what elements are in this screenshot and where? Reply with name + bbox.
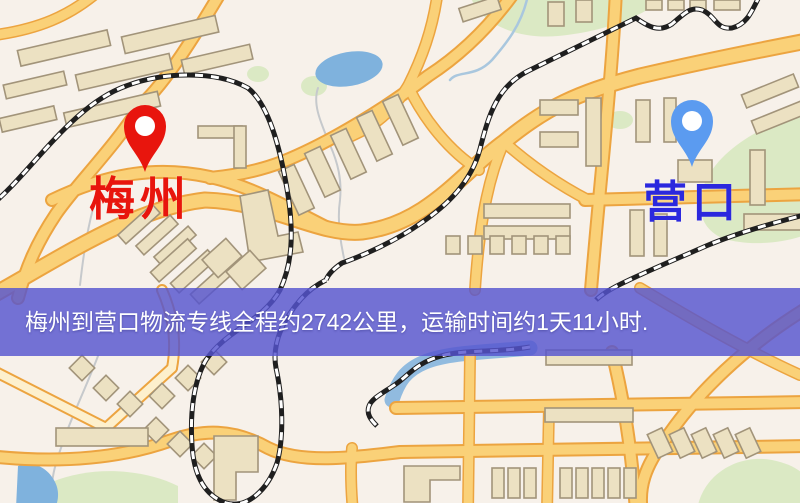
map-canvas: [0, 0, 800, 503]
map[interactable]: 梅州 营口 梅州到营口物流专线全程约2742公里，运输时间约1天11小时.: [0, 0, 800, 503]
origin-pin-icon[interactable]: [122, 104, 168, 172]
destination-city-label: 营口: [612, 180, 772, 226]
route-info-banner: 梅州到营口物流专线全程约2742公里，运输时间约1天11小时.: [0, 288, 800, 356]
destination-pin-icon[interactable]: [669, 99, 715, 167]
origin-city-label: 梅州: [60, 176, 220, 224]
route-info-text: 梅州到营口物流专线全程约2742公里，运输时间约1天11小时.: [0, 288, 800, 356]
